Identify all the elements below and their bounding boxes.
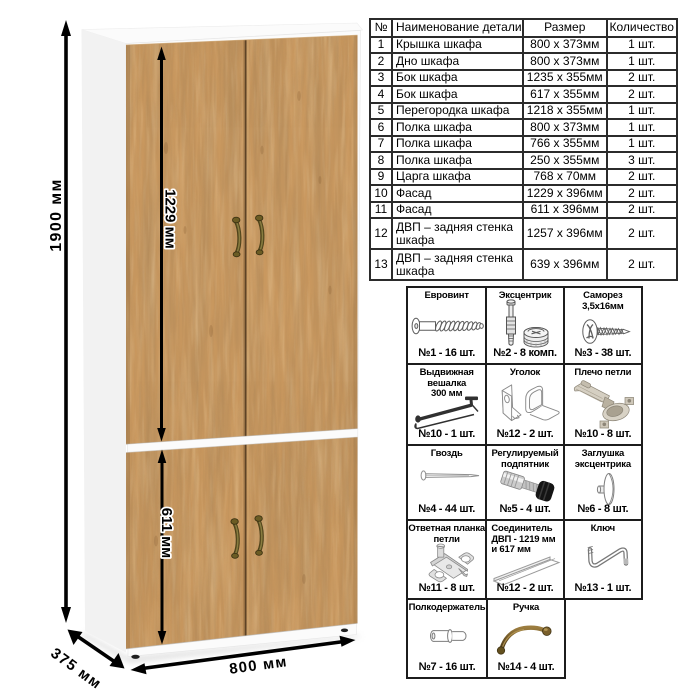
svg-text:1229 мм: 1229 мм xyxy=(162,189,179,249)
svg-text:1900 мм: 1900 мм xyxy=(48,178,65,252)
svg-text:611 мм: 611 мм xyxy=(158,508,175,559)
svg-text:375 мм: 375 мм xyxy=(47,645,104,693)
